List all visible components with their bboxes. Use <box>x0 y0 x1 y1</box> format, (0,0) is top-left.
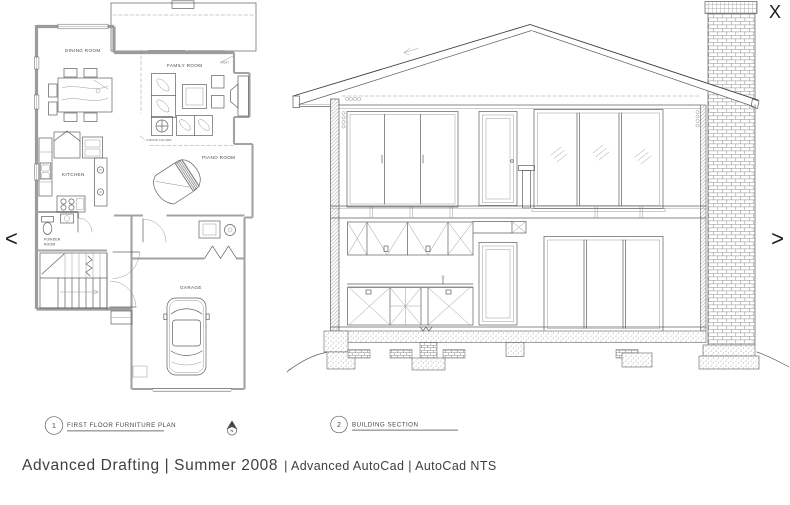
car <box>164 298 209 375</box>
plan-title-text: FIRST FLOOR FURNITURE PLAN <box>67 422 176 429</box>
north-label: N <box>231 428 234 433</box>
kitchen-counter <box>348 275 474 286</box>
bifold-door <box>205 246 237 259</box>
section-title-number: 2 <box>337 422 341 429</box>
lightbox-stage: DINING ROOM <box>0 0 790 500</box>
post-annotation: POST <box>220 56 233 65</box>
family-room-label: FAMILY ROOM <box>167 63 202 68</box>
lower-window <box>544 237 663 332</box>
caption-course: Advanced Drafting | Summer 2008 <box>22 457 278 474</box>
drawing-image: DINING ROOM <box>0 0 790 500</box>
svg-text:4 WOOD COLUMN: 4 WOOD COLUMN <box>146 138 172 142</box>
upper-door <box>479 112 517 206</box>
section-walls <box>331 99 707 331</box>
section-title: 2 BUILDING SECTION <box>331 416 458 433</box>
cad-drawing-svg: DINING ROOM <box>0 0 790 500</box>
garage-label: GARAGE <box>180 285 202 290</box>
section-title-text: BUILDING SECTION <box>352 422 418 429</box>
chimney <box>699 2 789 370</box>
building-section-drawing: 2 BUILDING SECTION <box>287 2 789 433</box>
lower-door <box>479 243 517 326</box>
newel-post <box>519 166 535 209</box>
wood-column-annotation: 4 WOOD COLUMN <box>140 136 172 142</box>
deck <box>111 1 256 53</box>
piano-room-label: PIANO ROOM <box>202 155 235 160</box>
dining-table-set <box>49 69 113 122</box>
svg-text:POST: POST <box>221 61 229 65</box>
hall-fixtures <box>143 219 237 259</box>
roof <box>293 24 759 109</box>
kitchen-upper-cabinets <box>348 222 474 255</box>
family-room-furniture <box>152 74 225 136</box>
garage-door <box>133 366 231 391</box>
entry-doors <box>110 252 140 324</box>
prev-arrow-button[interactable]: < <box>5 228 18 250</box>
powder-room-fixtures <box>42 214 93 235</box>
foundation <box>287 327 706 372</box>
next-arrow-button[interactable]: > <box>771 228 784 250</box>
tv-unit <box>231 76 249 116</box>
north-arrow: N <box>227 421 238 436</box>
dining-room-label: DINING ROOM <box>65 48 101 53</box>
plan-title-number: 1 <box>52 423 56 430</box>
floor-plan-drawing: DINING ROOM <box>34 1 256 435</box>
upper-floor-band <box>331 206 706 233</box>
slope-arrow <box>404 48 418 55</box>
caption: Advanced Drafting | Summer 2008| Advance… <box>22 457 497 475</box>
kitchen-lower-cabinets <box>348 288 474 326</box>
powder-room-label-1: POWDER <box>44 238 61 242</box>
stairs <box>40 253 107 308</box>
upper-closet <box>347 112 458 208</box>
close-button[interactable]: X <box>769 3 781 21</box>
upper-window <box>532 110 665 212</box>
plan-title: 1 FIRST FLOOR FURNITURE PLAN <box>45 417 176 435</box>
caption-detail: | Advanced AutoCad | AutoCad NTS <box>284 459 496 473</box>
powder-room-label-2: ROOM <box>44 243 55 247</box>
grand-piano <box>149 155 206 209</box>
kitchen-label: KITCHEN <box>62 172 85 177</box>
